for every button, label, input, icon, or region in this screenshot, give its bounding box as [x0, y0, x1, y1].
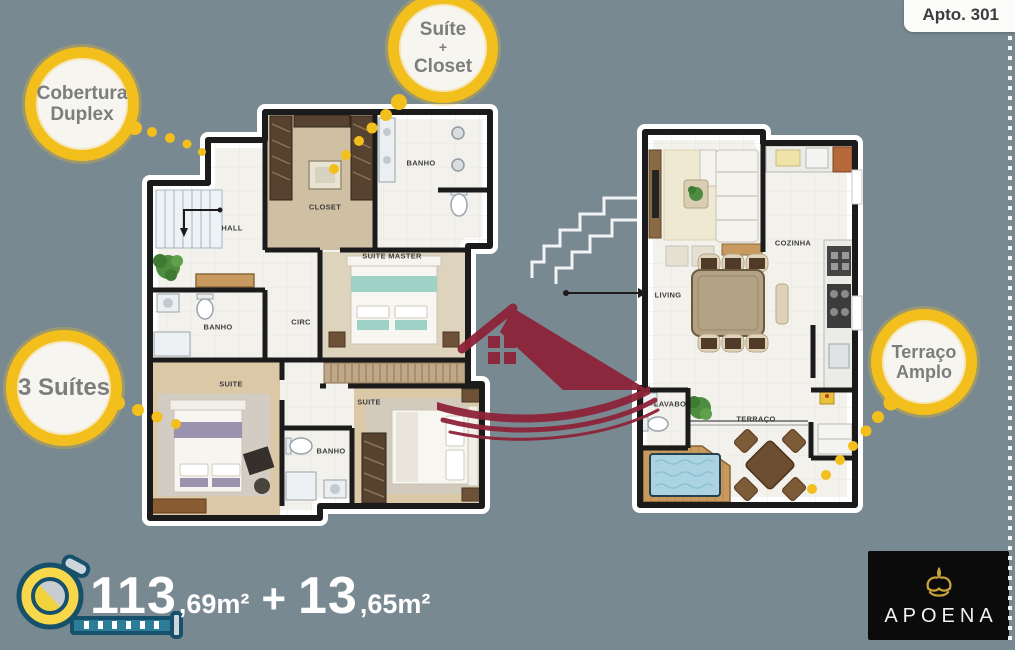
brand-logo: APOENA	[868, 551, 1009, 640]
room-label-suite3: SUITE	[357, 398, 381, 407]
callout-suite-closet: Suíte + Closet	[388, 0, 498, 103]
perforation-dots	[1008, 36, 1012, 644]
callout-tres-suites: 3 Suítes	[6, 330, 122, 446]
diya-flame-icon	[917, 564, 961, 604]
room-label-banho-suite2: BANHO	[204, 323, 233, 332]
bed-suite2	[152, 394, 274, 513]
apartment-number-badge: Apto. 301	[904, 0, 1015, 32]
stairs-upper	[156, 190, 223, 248]
entry-arrow	[563, 288, 647, 298]
callout-text: Cobertura	[37, 83, 128, 104]
callout-terraco-amplo: Terraço Amplo	[871, 309, 977, 415]
callout-text: +	[439, 40, 447, 56]
floorplan-poster: HALL CLOSET BANHO SUITE MASTER BANHO CIR…	[0, 0, 1015, 650]
room-label-hall: HALL	[221, 224, 242, 233]
callout-text: 3 Suítes	[18, 375, 110, 402]
callout-text: Duplex	[50, 104, 113, 125]
area-sec-frac: ,65m²	[360, 589, 431, 620]
room-label-closet: CLOSET	[309, 203, 341, 212]
room-label-terraco: TERRAÇO	[736, 415, 775, 424]
room-label-living: LIVING	[655, 291, 682, 300]
lower-floorplan-drawing	[530, 115, 870, 525]
room-label-suite2: SUITE	[219, 380, 243, 389]
callout-text: Terraço	[892, 342, 957, 362]
area-main-int: 113	[90, 566, 177, 626]
room-label-suite-master: SUITE MASTER	[362, 252, 421, 261]
area-banner: 113 ,69m² + 13 ,65m²	[14, 552, 434, 647]
living-furniture	[649, 150, 762, 266]
area-main-frac: ,69m²	[179, 589, 250, 620]
area-plus: +	[261, 575, 286, 623]
room-label-circ: CIRC	[291, 318, 311, 327]
area-sec-int: 13	[298, 566, 358, 626]
brand-name: APOENA	[884, 605, 997, 628]
callout-text: Closet	[414, 56, 472, 77]
upper-floorplan: HALL CLOSET BANHO SUITE MASTER BANHO CIR…	[128, 96, 514, 532]
room-label-banho-master: BANHO	[407, 159, 436, 168]
callout-text: Suíte	[420, 19, 466, 40]
hall-console	[196, 274, 254, 287]
callout-cobertura-duplex: Cobertura Duplex	[25, 47, 139, 161]
room-label-lavabo: LAVABO	[654, 400, 686, 409]
room-label-banho-suite3: BANHO	[317, 447, 346, 456]
apartment-number: Apto. 301	[922, 5, 999, 24]
area-text: 113 ,69m² + 13 ,65m²	[90, 566, 430, 626]
room-label-cozinha: COZINHA	[775, 239, 811, 248]
lower-floorplan: LIVING COZINHA LAVABO TERRAÇO	[530, 115, 870, 525]
callout-text: Amplo	[896, 362, 952, 382]
wardrobe-suite-master	[324, 363, 465, 383]
upper-floorplan-drawing	[128, 96, 514, 532]
stair-void	[532, 198, 646, 284]
